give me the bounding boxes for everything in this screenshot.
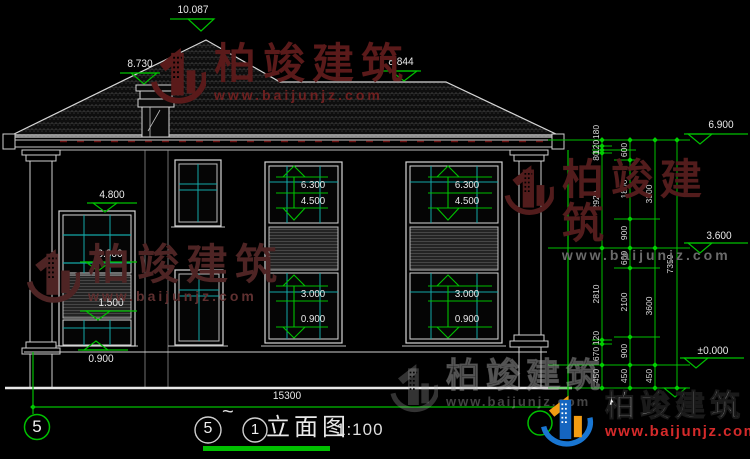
- chain-inner-5: 120: [592, 331, 601, 345]
- level-ground: ±0.000: [698, 346, 729, 357]
- bay-window-left: [59, 211, 135, 346]
- chain-total: 7350: [666, 255, 675, 274]
- win-r-low-top: 3.000: [455, 289, 479, 300]
- win-r-low-sill: 0.900: [455, 314, 479, 325]
- window-small-lower: [175, 270, 223, 345]
- overall-width-dim: 15300: [273, 391, 301, 402]
- chain-inner-3: 2920: [592, 191, 601, 210]
- axis-bubble-left-label: 5: [32, 419, 41, 435]
- chain-inner-7: 450: [592, 369, 601, 383]
- win-c-low-sill: 0.900: [301, 314, 325, 325]
- level-bay-low: 1.500: [98, 298, 123, 309]
- drawing-linework: [0, 0, 750, 459]
- roof: [3, 40, 564, 149]
- win-r-up-top: 6.300: [455, 180, 479, 191]
- level-first-sill: 0.900: [88, 354, 113, 365]
- chain-floors-2: 450: [645, 369, 654, 383]
- chain-floors-1: 3600: [645, 297, 654, 316]
- win-c-low-top: 3.000: [301, 289, 325, 300]
- level-bay-top: 4.800: [99, 190, 124, 201]
- chain-detail-2: 900: [620, 226, 629, 240]
- level-sub-ridge: 8.844: [388, 57, 413, 68]
- level-bay-mid: 3.000: [97, 249, 122, 260]
- window-small-upper: [175, 160, 221, 226]
- title-axis-from: 5: [204, 421, 213, 437]
- level-ridge: 10.087: [178, 5, 209, 16]
- chain-inner-2: 80: [592, 151, 601, 160]
- chain-detail-4: 2100: [620, 293, 629, 312]
- chain-detail-3: 600: [620, 251, 629, 265]
- chain-detail-5: 900: [620, 344, 629, 358]
- win-c-up-sill: 4.500: [301, 196, 325, 207]
- level-second-floor: 3.600: [706, 231, 731, 242]
- title-tilde: ~: [222, 402, 234, 422]
- chain-detail-6: 450: [620, 369, 629, 383]
- win-c-up-top: 6.300: [301, 180, 325, 191]
- chain-detail-0: 600: [620, 143, 629, 157]
- level-chimney-top: 8.730: [127, 59, 152, 70]
- elevation-drawing: 10.087 8.730 8.844 4.800 3.000 1.500 0.9…: [0, 0, 750, 459]
- drawing-scale: 1:100: [336, 421, 384, 439]
- chain-detail-1: 1800: [620, 180, 629, 199]
- level-eave: 6.900: [708, 120, 733, 131]
- chain-inner-6: 670: [592, 347, 601, 361]
- chain-floors-0: 3300: [645, 185, 654, 204]
- title-underline: [203, 446, 330, 451]
- win-r-up-sill: 4.500: [455, 196, 479, 207]
- chain-inner-0: 180: [592, 125, 601, 139]
- chain-inner-4: 2810: [592, 285, 601, 304]
- title-axis-to: 1: [251, 422, 259, 438]
